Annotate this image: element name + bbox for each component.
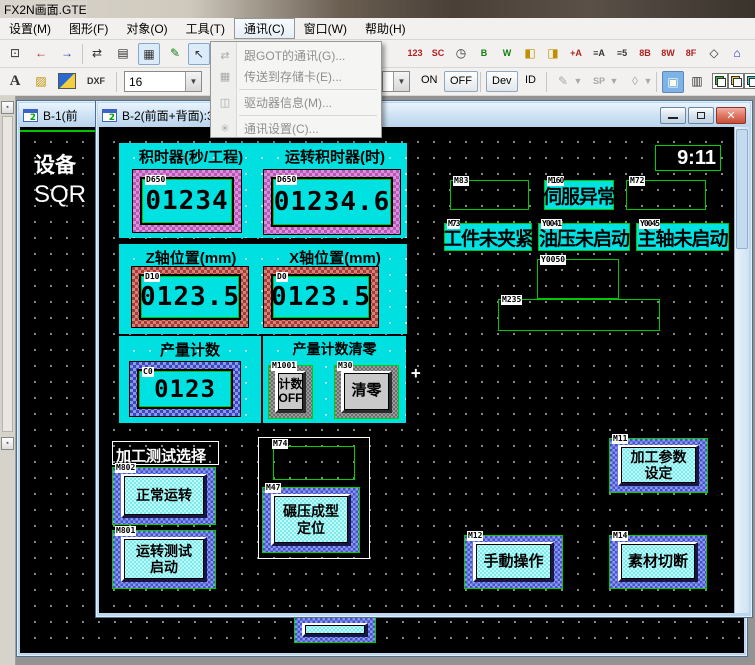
- alarm-workpiece-unclamped[interactable]: M73 工件未夹紧: [444, 223, 532, 251]
- ascii-display-icon[interactable]: SC: [427, 43, 449, 65]
- menu-objects[interactable]: 对象(O): [117, 18, 176, 39]
- menu-item-memory-card[interactable]: ▦ 传送到存储卡(E)...: [211, 66, 381, 87]
- comment-b-icon[interactable]: B: [473, 43, 495, 65]
- screen-copy-icon[interactable]: ⇄: [86, 43, 108, 65]
- menu-separator: [239, 89, 377, 90]
- font-size-value: 16: [125, 75, 185, 89]
- touchkey-w-icon[interactable]: 8W: [657, 43, 679, 65]
- dock-button-top[interactable]: ▪: [1, 101, 14, 114]
- button-text: 运转测试: [136, 543, 192, 559]
- counter-reset-label: 产量计数清零: [263, 339, 406, 359]
- left-dock-toolbar: ▪ ▪: [0, 96, 16, 665]
- clock-icon[interactable]: ◷: [450, 43, 472, 65]
- dev-button[interactable]: Dev: [486, 71, 518, 92]
- alarm-list-icon[interactable]: ≡A: [588, 43, 610, 65]
- z-axis-label: Z轴位置(mm): [119, 247, 263, 268]
- device-label: M83: [453, 176, 469, 186]
- alarm-m83[interactable]: M83: [450, 180, 529, 210]
- window-b2-title: B-2(前面+背面):3: [122, 107, 214, 124]
- alarm-icon[interactable]: +A: [565, 43, 587, 65]
- screen-doc-icon: 2: [23, 109, 38, 122]
- timer-label: 积时器(秒/工程): [119, 146, 263, 167]
- device-label: M72: [629, 176, 645, 186]
- device-label: Y0041: [541, 219, 562, 229]
- menu-separator: [239, 115, 377, 116]
- menu-communication[interactable]: 通讯(C): [234, 18, 295, 39]
- device-label: M11: [612, 434, 628, 444]
- display-value: 0123.5: [140, 282, 240, 312]
- device-label: Y0050: [540, 255, 566, 265]
- numeric-display-counter[interactable]: C0 0123: [129, 361, 241, 417]
- alarm-servo-error[interactable]: M160 伺服异常: [544, 180, 614, 210]
- device-label: M1001: [271, 361, 297, 371]
- comm-settings-icon: ✳: [217, 122, 233, 135]
- press-forming-button[interactable]: M47 碾压成型 定位: [262, 487, 360, 553]
- overlap-front-icon[interactable]: [712, 73, 728, 89]
- vertical-scrollbar[interactable]: [734, 127, 749, 613]
- button-text: 碾压成型: [283, 503, 339, 519]
- numeric-display-run-timer[interactable]: D650 01234.6: [263, 169, 401, 235]
- button-text: 计数: [278, 378, 302, 391]
- screen-combo-partial[interactable]: ▼: [382, 71, 410, 92]
- on-button[interactable]: ON: [416, 71, 443, 92]
- chevron-down-icon[interactable]: ▼: [185, 72, 201, 91]
- window-preview-icon[interactable]: ▣: [662, 71, 684, 93]
- dock-panel: [2, 116, 13, 432]
- chevron-down-icon[interactable]: ▼: [393, 72, 409, 91]
- shape-icon[interactable]: ◇: [703, 43, 725, 65]
- device-label: M47: [265, 483, 281, 493]
- comment-w-icon[interactable]: W: [496, 43, 518, 65]
- application-window: FX2N画面.GTE 设置(M) 图形(F) 对象(O) 工具(T) 通讯(C)…: [0, 0, 755, 665]
- id-button[interactable]: ID: [520, 71, 541, 92]
- font-size-combo[interactable]: 16 ▼: [124, 71, 202, 92]
- run-timer-label: 运转积时器(时): [263, 146, 407, 167]
- button-text: 定位: [297, 520, 325, 536]
- dock-button-bottom[interactable]: ▪: [1, 437, 14, 450]
- m74-group: M74 M47 碾压成型 定位: [258, 437, 370, 559]
- alarm-m72[interactable]: M72: [626, 180, 706, 210]
- m74-lamp-rect[interactable]: [273, 446, 355, 480]
- clock-value: 9:11: [677, 147, 716, 170]
- numeric-display-icon[interactable]: 123: [404, 43, 426, 65]
- device-label: M14: [612, 531, 628, 541]
- menu-help[interactable]: 帮助(H): [356, 18, 415, 39]
- draw-icon[interactable]: ✎: [164, 43, 186, 65]
- layers-icon[interactable]: ▦: [138, 43, 160, 65]
- device-label: M74: [272, 439, 288, 449]
- b1-text-2[interactable]: SQR: [34, 181, 86, 209]
- numeric-display-timer[interactable]: D650 01234: [132, 169, 242, 233]
- paint-tool-icon[interactable]: ▨: [30, 71, 52, 93]
- lamp-icon[interactable]: ◧: [519, 43, 541, 65]
- count-off-button[interactable]: M1001 计数 OFF: [268, 365, 313, 419]
- device-label: Y0045: [639, 219, 660, 229]
- b2-canvas[interactable]: + 积时器(秒/工程) 运转积时器(时) D650 01234 D650 012…: [99, 127, 736, 613]
- alarm-m235[interactable]: M235: [498, 299, 660, 331]
- device-label: D0: [276, 272, 288, 282]
- button-text: 素材切断: [628, 553, 688, 570]
- menu-item-drive-info[interactable]: ◫ 驱动器信息(M)...: [211, 92, 381, 113]
- display-value: 0123: [154, 375, 216, 403]
- image-icon[interactable]: [58, 73, 76, 89]
- button-text: 设定: [645, 465, 673, 481]
- line-style-icon[interactable]: ✎: [552, 71, 574, 93]
- menu-item-comm-settings[interactable]: ✳ 通讯设置(C)...: [211, 118, 381, 139]
- chevron-down-icon[interactable]: ▼: [572, 71, 584, 93]
- display-value: 01234: [145, 186, 228, 216]
- device-label: D650: [145, 175, 166, 185]
- crosshair-cursor: +: [411, 363, 421, 382]
- device-label: M802: [115, 463, 136, 473]
- next-screen-icon[interactable]: →: [56, 43, 78, 65]
- device-label: D650: [276, 175, 297, 185]
- button-text: 启动: [150, 559, 178, 575]
- restore-button[interactable]: [688, 107, 714, 124]
- overlap-back-icon[interactable]: [744, 73, 755, 89]
- alarm-y0050[interactable]: Y0050: [537, 259, 619, 299]
- message-icon[interactable]: ◨: [542, 43, 564, 65]
- device-label: M73: [447, 219, 460, 229]
- scrollbar-thumb[interactable]: [736, 129, 748, 249]
- security-icon[interactable]: ⌂: [726, 43, 748, 65]
- window-b1-title: B-1(前: [43, 107, 78, 124]
- attribute-table-icon[interactable]: ▥: [686, 71, 708, 93]
- alarm-hydraulic-not-started[interactable]: Y0041 油压未启动: [538, 223, 630, 251]
- app-titlebar[interactable]: FX2N画面.GTE: [0, 0, 755, 18]
- device-label: M801: [115, 526, 136, 536]
- chevron-down-icon[interactable]: ▼: [642, 71, 654, 93]
- normal-run-button[interactable]: M802 正常运转: [112, 467, 216, 525]
- window-b2: 2 B-2(前面+背面):3 ✕ + 积时器(秒/工程) 运转积时器(时) D6…: [95, 100, 753, 618]
- process-params-button[interactable]: M11 加工参数 设定: [609, 438, 708, 493]
- device-label: M160: [547, 176, 564, 186]
- clock-display[interactable]: 9:11: [655, 145, 721, 171]
- display-value: 0123.5: [271, 282, 371, 312]
- b1-text-1[interactable]: 设备: [34, 149, 76, 179]
- alarm-spindle-not-started[interactable]: Y0045 主轴未启动: [636, 223, 729, 251]
- text-tool-icon[interactable]: A: [4, 71, 26, 93]
- counter-label: 产量计数: [119, 339, 261, 360]
- b1-partial-button[interactable]: [294, 617, 376, 643]
- select-icon[interactable]: ↖: [188, 43, 210, 65]
- memory-card-icon: ▦: [217, 70, 233, 83]
- button-text: 清零: [351, 383, 381, 400]
- alarm-history-icon[interactable]: ≡5: [611, 43, 633, 65]
- close-button[interactable]: ✕: [716, 107, 746, 124]
- drive-icon: ◫: [217, 96, 233, 109]
- menu-graphics[interactable]: 图形(F): [60, 18, 117, 39]
- dxf-icon[interactable]: DXF: [82, 71, 110, 93]
- manual-operation-button[interactable]: M12 手動操作: [464, 535, 563, 589]
- material-cut-button[interactable]: M14 素材切断: [609, 535, 707, 589]
- prev-screen-icon[interactable]: ←: [30, 43, 52, 65]
- menu-item-got-comm[interactable]: ⇄ 跟GOT的通讯(G)...: [211, 45, 381, 66]
- device-label: D10: [144, 272, 160, 282]
- button-text: 手動操作: [483, 553, 543, 570]
- screen-list-icon[interactable]: ▤: [112, 43, 134, 65]
- minimize-button[interactable]: [660, 107, 686, 124]
- device-label: M30: [337, 361, 353, 371]
- numeric-display-x-axis[interactable]: D0 0123.5: [263, 266, 379, 328]
- overlap-mid-icon[interactable]: [728, 73, 744, 89]
- display-value: 01234.6: [274, 187, 391, 217]
- x-axis-label: X轴位置(mm): [263, 247, 407, 268]
- button-text: OFF: [279, 392, 303, 405]
- test-run-button[interactable]: M801 运转测试 启动: [112, 530, 216, 589]
- button-text: 加工参数: [631, 449, 687, 465]
- off-button[interactable]: OFF: [444, 71, 478, 92]
- preview-icon[interactable]: ⊡: [4, 43, 26, 65]
- numeric-display-z-axis[interactable]: D10 0123.5: [131, 266, 249, 328]
- menu-tools[interactable]: 工具(T): [177, 18, 234, 39]
- menu-settings[interactable]: 设置(M): [0, 18, 60, 39]
- communication-menu: ⇄ 跟GOT的通讯(G)... ▦ 传送到存储卡(E)... ◫ 驱动器信息(M…: [210, 41, 382, 138]
- transfer-icon: ⇄: [217, 49, 233, 62]
- touchkey-f-icon[interactable]: 8F: [680, 43, 702, 65]
- clear-button[interactable]: M30 清零: [334, 365, 399, 419]
- device-label: M235: [501, 295, 522, 305]
- test-select-label-box: 加工测试选择: [112, 441, 219, 465]
- device-label: C0: [142, 367, 154, 377]
- menu-window[interactable]: 窗口(W): [295, 18, 356, 39]
- touchkey-b-icon[interactable]: 8B: [634, 43, 656, 65]
- app-title: FX2N画面.GTE: [0, 1, 87, 18]
- button-text: 正常运转: [136, 487, 192, 503]
- chevron-down-icon[interactable]: ▼: [608, 71, 620, 93]
- sp-style-icon[interactable]: SP: [588, 71, 610, 93]
- menubar: 设置(M) 图形(F) 对象(O) 工具(T) 通讯(C) 窗口(W) 帮助(H…: [0, 18, 755, 40]
- window-b2-titlebar[interactable]: 2 B-2(前面+背面):3 ✕: [98, 103, 750, 127]
- device-label: M12: [467, 531, 483, 541]
- screen-doc-icon: 2: [102, 109, 117, 122]
